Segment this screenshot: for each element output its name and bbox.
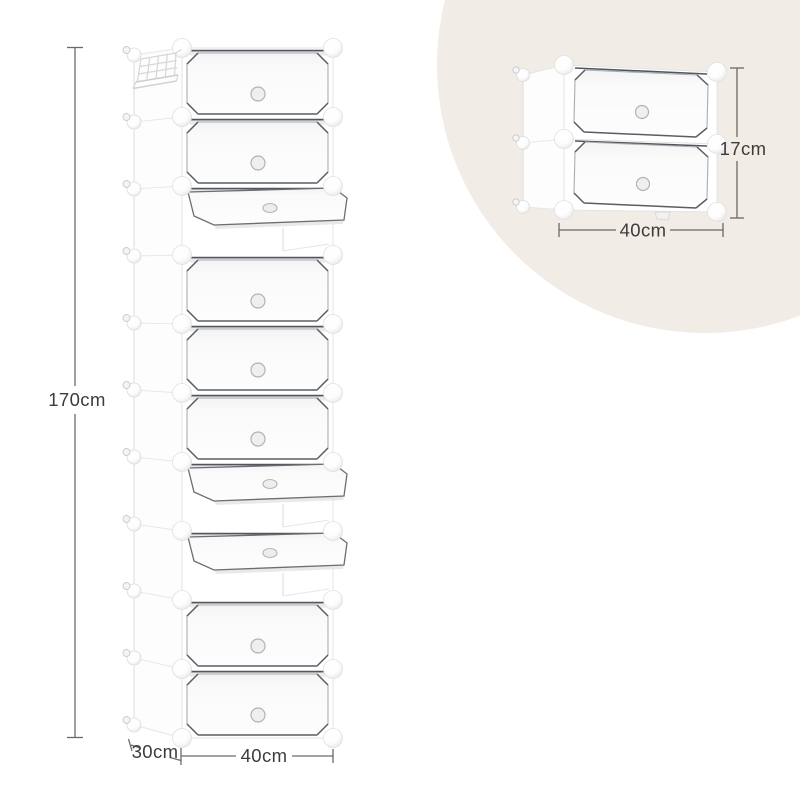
door-panel [187,53,328,114]
door-knob [251,639,265,653]
connector-screw-cap [513,67,519,73]
connector-ball [324,660,343,679]
connector-screw-cap [123,315,130,322]
depth-dimension-label: 30cm [132,741,179,762]
depth-dimension: 30cm [129,739,182,762]
connector-screw-cap [123,449,130,456]
connector-ball [173,108,192,127]
door-knob [251,432,265,446]
connector-ball [173,384,192,403]
connector-ball [173,246,192,265]
cabinet-door-closed [187,53,328,114]
connector-ball [173,177,192,196]
door-panel [187,398,328,459]
door-knob [636,106,649,119]
inset-unit [513,56,727,222]
connector-screw-cap [123,516,130,523]
shoe-rack [123,39,347,748]
inset-door-bottom [574,142,708,208]
connector-ball [708,203,727,222]
connector-screw-cap [123,583,130,590]
door-panel [187,122,328,183]
door-knob [263,204,277,213]
inset-height-dimension-label: 17cm [720,138,767,159]
product-dimension-illustration: 170cm 30cm 40cm 17cm 40cm [0,0,800,795]
connector-ball [173,522,192,541]
connector-ball [173,315,192,334]
connector-screw-cap [513,199,519,205]
connector-ball [324,384,343,403]
door-panel [574,70,708,137]
door-knob [251,156,265,170]
connector-ball [324,522,343,541]
door-knob [263,480,277,489]
connector-screw-cap [513,135,519,141]
cabinet-door-closed [187,605,328,666]
connector-ball [555,130,574,149]
door-panel [187,605,328,666]
connector-ball [555,56,574,75]
connector-ball [324,315,343,334]
cabinet-door-closed [187,122,328,183]
connector-ball [324,39,343,58]
connector-ball [324,108,343,127]
connector-ball [324,729,343,748]
connector-ball [324,177,343,196]
door-panel [574,142,708,208]
cabinet-door-closed [187,260,328,321]
connector-screw-cap [123,382,130,389]
inset-door-top [574,70,708,137]
cabinet-door-closed [187,329,328,390]
door-panel [187,329,328,390]
connector-screw-cap [123,181,130,188]
connector-ball [324,246,343,265]
connector-ball [555,201,574,220]
door-knob [637,178,650,191]
door-panel [187,260,328,321]
door-panel [187,674,328,735]
connector-ball [173,453,192,472]
door-knob [251,708,265,722]
door-knob [251,87,265,101]
connector-ball [708,63,727,82]
connector-screw-cap [123,650,130,657]
connector-ball [173,591,192,610]
inset-width-dimension-label: 40cm [620,220,667,241]
width-dimension-label: 40cm [241,745,288,766]
connector-screw-cap [123,114,130,121]
connector-ball [324,453,343,472]
connector-screw-cap [123,47,130,54]
door-knob [251,363,265,377]
height-dimension-label: 170cm [48,389,106,410]
connector-screw-cap [123,717,130,724]
connector-ball [324,591,343,610]
cabinet-door-closed [187,674,328,735]
door-knob [263,549,277,558]
door-knob [251,294,265,308]
connector-ball [173,660,192,679]
cabinet-door-closed [187,398,328,459]
connector-screw-cap [123,248,130,255]
illustration-canvas: 170cm 30cm 40cm 17cm 40cm [0,0,800,795]
